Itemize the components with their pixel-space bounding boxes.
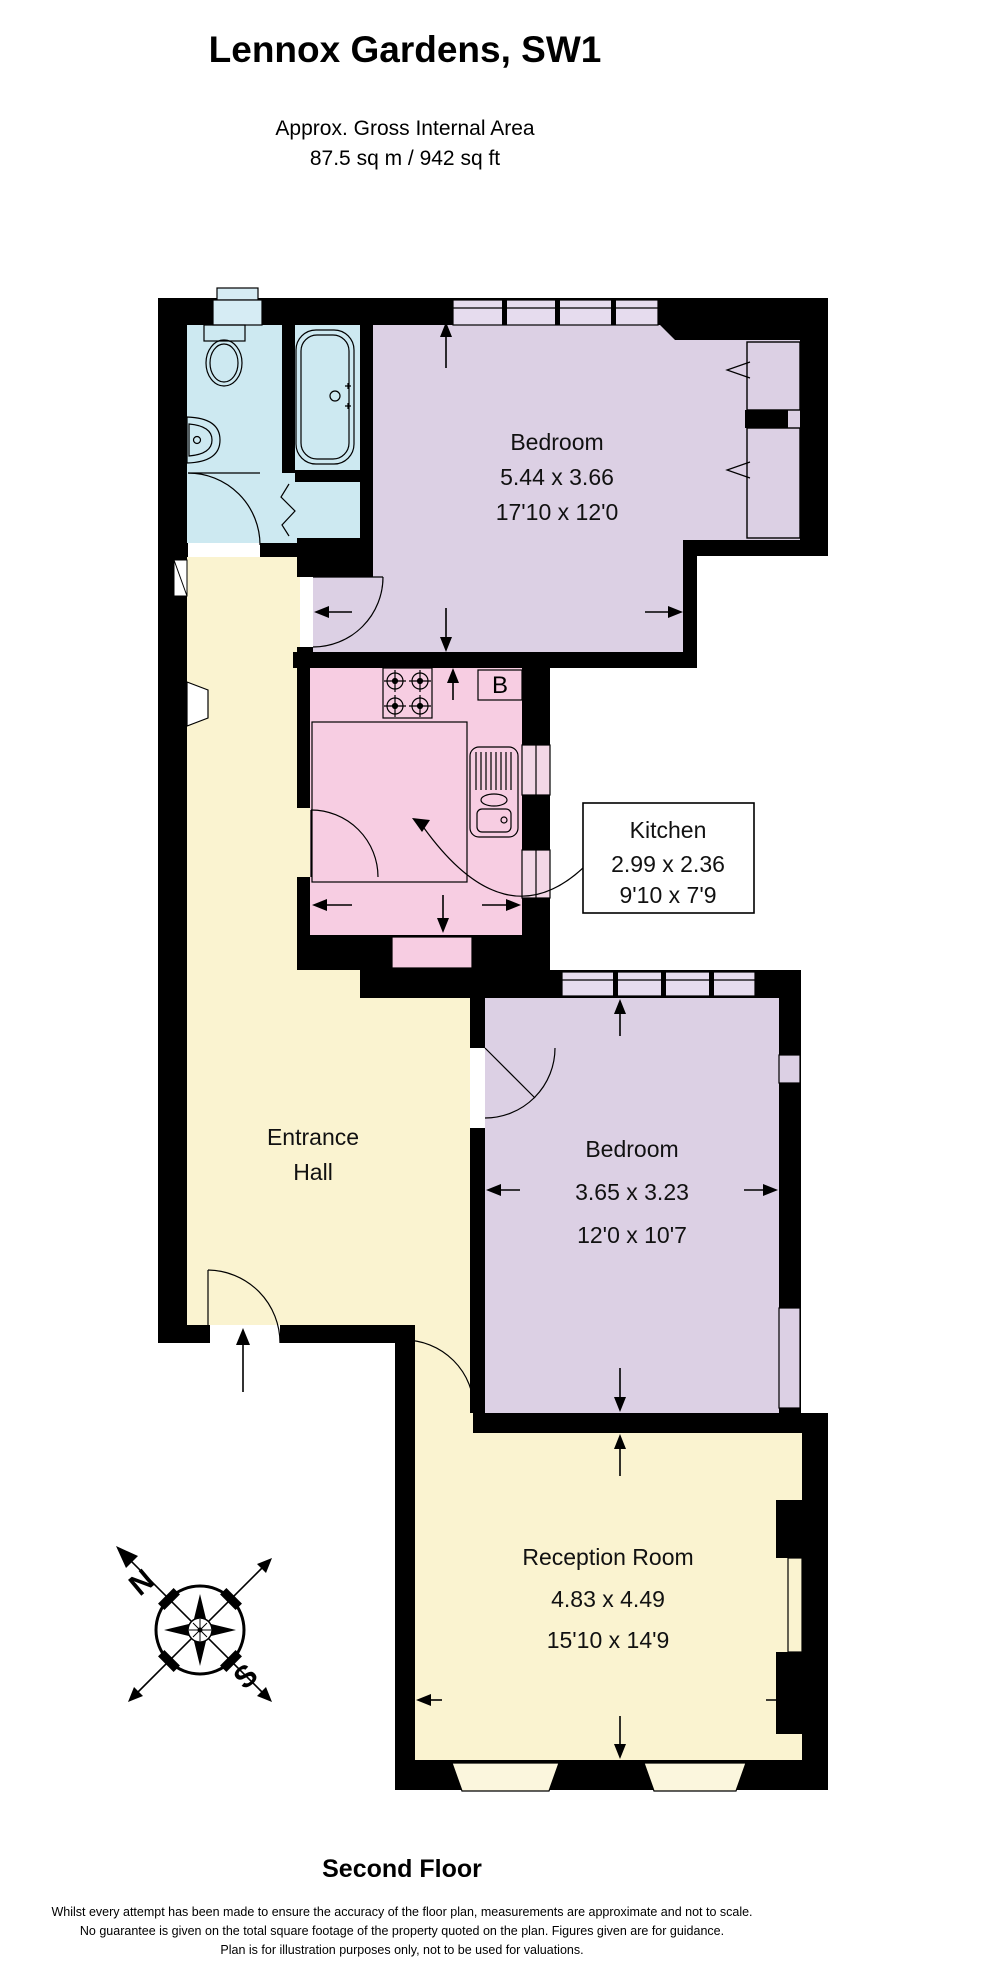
reception-dim-m: 4.83 x 4.49: [551, 1586, 665, 1612]
wall-bath-divider: [282, 325, 295, 473]
entrance-hall-label-1: Entrance: [267, 1124, 359, 1150]
bedroom2-floor: [485, 998, 779, 1413]
disclaimer-line-1: Whilst every attempt has been made to en…: [51, 1905, 752, 1919]
bedroom2-label: Bedroom: [585, 1136, 678, 1162]
bedroom2-window-band: [562, 972, 755, 996]
kitchen-label: Kitchen: [630, 817, 707, 843]
boiler-label: B: [492, 672, 508, 699]
floorplan-page: Lennox Gardens, SW1 Approx. Gross Intern…: [0, 0, 1005, 1982]
bedroom2-recess-1: [779, 1055, 800, 1083]
bedroom1-window-mullion-3: [611, 298, 616, 325]
reception-window-2: [644, 1763, 746, 1791]
bedroom1-dim-ft: 17'10 x 12'0: [496, 499, 619, 525]
wall-bath-bottom-a: [173, 543, 188, 557]
area-subtitle: Approx. Gross Internal Area: [275, 117, 534, 140]
bedroom2-dim-m: 3.65 x 3.23: [575, 1179, 689, 1205]
wall-left: [158, 298, 187, 1343]
wall-kitchen-top: [293, 652, 697, 668]
bedroom2-dim-ft: 12'0 x 10'7: [577, 1222, 687, 1248]
wall-bed1-left: [360, 325, 373, 557]
entrance-arrow-up: [236, 1328, 250, 1345]
bedroom2-window-mullion-3: [709, 970, 714, 998]
wall-hall-bottom-a: [158, 1325, 210, 1343]
wall-reception-left: [395, 1328, 415, 1790]
bay-alcove-divider: [745, 410, 788, 428]
wall-chimney-b: [776, 1652, 802, 1734]
area-value: 87.5 sq m / 942 sq ft: [310, 147, 500, 170]
reception-niche: [788, 1558, 802, 1652]
wall-hall-bed1-a: [297, 557, 313, 577]
reception-window-1: [452, 1763, 559, 1791]
wall-hall-bed1-b: [297, 647, 313, 652]
bedroom1-window-mullion-2: [555, 298, 560, 325]
disclaimer-line-3: Plan is for illustration purposes only, …: [220, 1943, 583, 1957]
reception-dim-ft: 15'10 x 14'9: [547, 1627, 670, 1653]
page-title: Lennox Gardens, SW1: [209, 29, 602, 70]
kitchen-dim-m: 2.99 x 2.36: [611, 851, 725, 877]
compass-rose: N S: [116, 1546, 272, 1702]
floorplan-canvas: Lennox Gardens, SW1 Approx. Gross Intern…: [0, 0, 1005, 1982]
bedroom1-label: Bedroom: [510, 429, 603, 455]
bedroom1-dim-m: 5.44 x 3.66: [500, 464, 614, 490]
wall-bed2-left-b: [470, 1128, 485, 1413]
bedroom2-window-mullion-1: [613, 970, 618, 998]
wall-reception-right: [802, 1413, 828, 1790]
hall-window-2: [187, 682, 208, 726]
floor-label: Second Floor: [322, 1855, 482, 1883]
wall-bay-right: [800, 298, 828, 556]
bathroom-window-outer: [217, 288, 258, 300]
kitchen-recess: [392, 937, 472, 968]
wall-bay-bottom: [683, 540, 828, 556]
wall-bed2-left-a: [470, 998, 485, 1048]
footer: Second Floor Whilst every attempt has be…: [51, 1855, 752, 1957]
compass-hub-dot: [198, 1628, 203, 1633]
wall-bed2-reception: [473, 1413, 828, 1433]
bathroom-window: [213, 300, 262, 325]
wall-kitchen-right-b: [522, 795, 550, 850]
wall-kitchen-left-b: [297, 877, 310, 935]
disclaimer-line-2: No guarantee is given on the total squar…: [80, 1924, 724, 1938]
wall-bed1-right: [683, 540, 697, 668]
kitchen-dim-ft: 9'10 x 7'9: [619, 882, 716, 908]
reception-label: Reception Room: [522, 1544, 693, 1570]
entrance-hall-label-2: Hall: [293, 1159, 333, 1185]
wall-bath-bottom-b: [260, 543, 297, 557]
compass-north-label: N: [123, 1563, 161, 1602]
wall-chimney-a: [776, 1500, 802, 1558]
wall-hall-bottom-b: [280, 1325, 415, 1343]
kitchen-floor: [310, 668, 522, 935]
wall-kitchen-right-a: [522, 668, 550, 745]
bedroom2-recess-2: [779, 1308, 800, 1408]
header: Lennox Gardens, SW1 Approx. Gross Intern…: [209, 29, 602, 170]
wall-tub-bottom: [295, 470, 360, 482]
bedroom1-window-mullion-1: [502, 298, 507, 325]
bathroom-alcove-floor: [297, 482, 360, 538]
wall-kitchen-left-a: [297, 668, 310, 808]
bedroom2-window-mullion-2: [661, 970, 666, 998]
